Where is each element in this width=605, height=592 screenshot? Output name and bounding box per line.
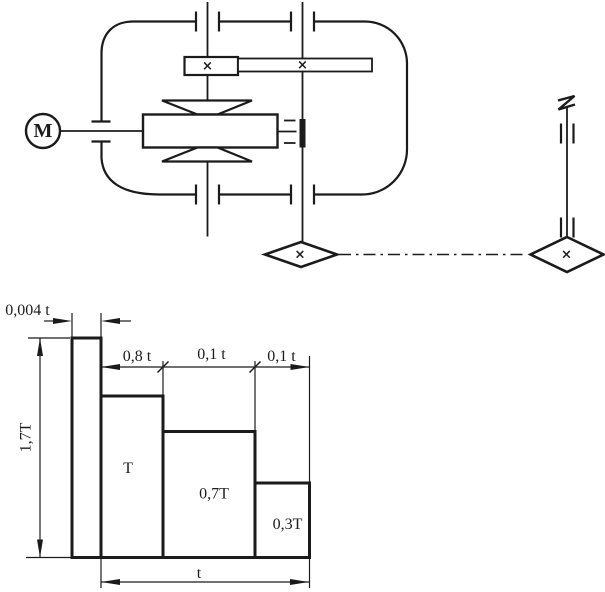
dim-label-peak-width: 0,004 t [5, 302, 50, 319]
gearbox-housing [92, 12, 408, 205]
dim-label-duration-1: 0,8 t [123, 348, 152, 365]
shaft-cross-icon: × [295, 248, 306, 263]
worm-wheel-lower-cone [162, 148, 252, 162]
dim-label-duration-3: 0,1 t [267, 348, 296, 365]
bar-label-T: T [123, 460, 133, 477]
gear-pair: × × [185, 57, 373, 75]
dimension-peak-width: 0,004 t [5, 302, 131, 338]
kinematic-scheme-and-load-diagram: M [0, 0, 605, 592]
dimension-peak-height: 1,7T [18, 338, 71, 558]
dim-label-total-time: t [197, 565, 202, 582]
bar-label-03T: 0,3T [273, 516, 303, 533]
shaft-cross-icon: × [561, 248, 572, 263]
worm-body [143, 115, 278, 148]
chart-bar-peak [72, 338, 101, 558]
shaft-cross-icon: × [202, 59, 213, 74]
worm-wheel-upper-cone [162, 101, 252, 115]
arrowhead [37, 338, 43, 356]
drive-scheme-page: M [0, 0, 605, 592]
chain-drive: × × [265, 237, 604, 272]
arrowhead [53, 318, 72, 324]
arrowhead [101, 579, 120, 585]
coupling [278, 119, 306, 148]
arrowhead [37, 540, 43, 558]
coupling-hub [300, 119, 306, 148]
worm-gear-set [143, 101, 278, 162]
arrowhead [290, 579, 309, 585]
arrowhead [101, 364, 120, 370]
shaft-break-icon [558, 96, 575, 110]
dim-label-duration-2: 0,1 t [197, 346, 226, 363]
driven-machine-shaft [558, 96, 575, 238]
electric-motor: M [26, 114, 143, 148]
motor-label: M [34, 120, 53, 142]
bar-label-07T: 0,7T [199, 486, 229, 503]
arrowhead [101, 318, 120, 324]
dim-label-peak-height: 1,7T [18, 422, 35, 452]
housing-outline [102, 22, 408, 195]
load-diagram: 0,004 t 1,7T 0,8 t 0,1 t 0,1 t [5, 302, 311, 588]
shaft-cross-icon: × [297, 58, 308, 73]
dimension-total-time: t [101, 558, 310, 588]
